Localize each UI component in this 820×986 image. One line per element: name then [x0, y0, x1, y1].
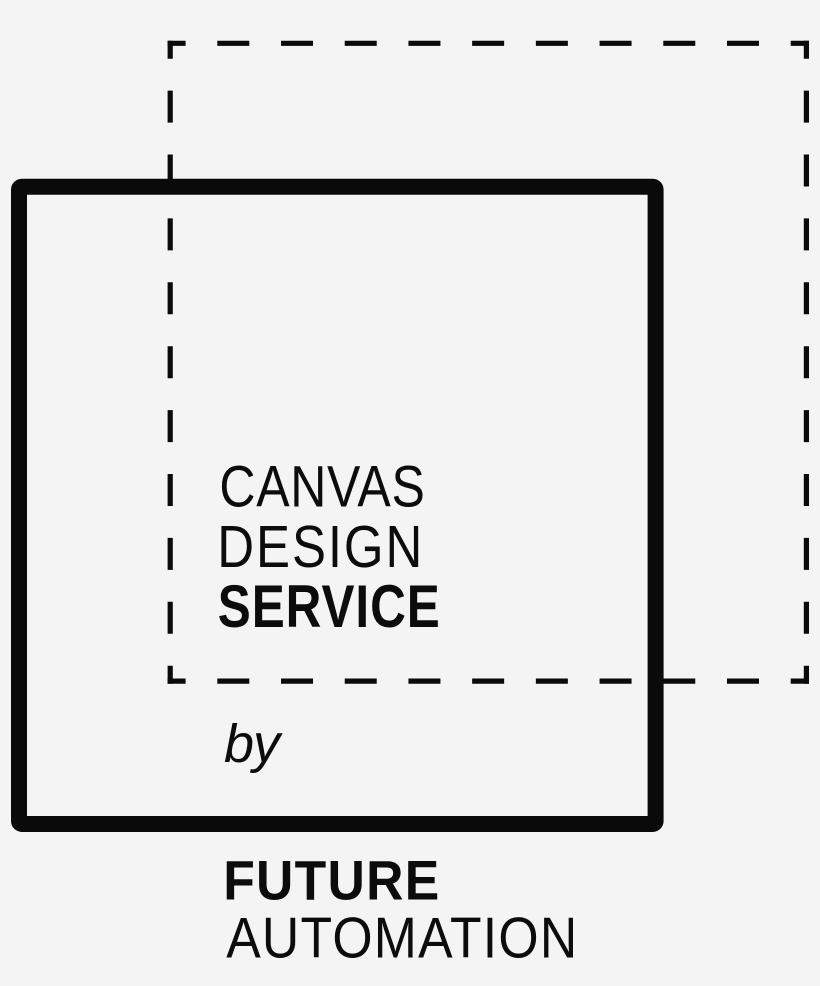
svg-text:SERVICE: SERVICE [218, 572, 441, 640]
svg-text:CANVAS: CANVAS [219, 454, 425, 520]
svg-text:by: by [224, 714, 283, 774]
svg-text:AUTOMATION: AUTOMATION [226, 905, 578, 970]
svg-text:DESIGN: DESIGN [217, 513, 424, 580]
svg-text:FUTURE: FUTURE [223, 850, 440, 912]
